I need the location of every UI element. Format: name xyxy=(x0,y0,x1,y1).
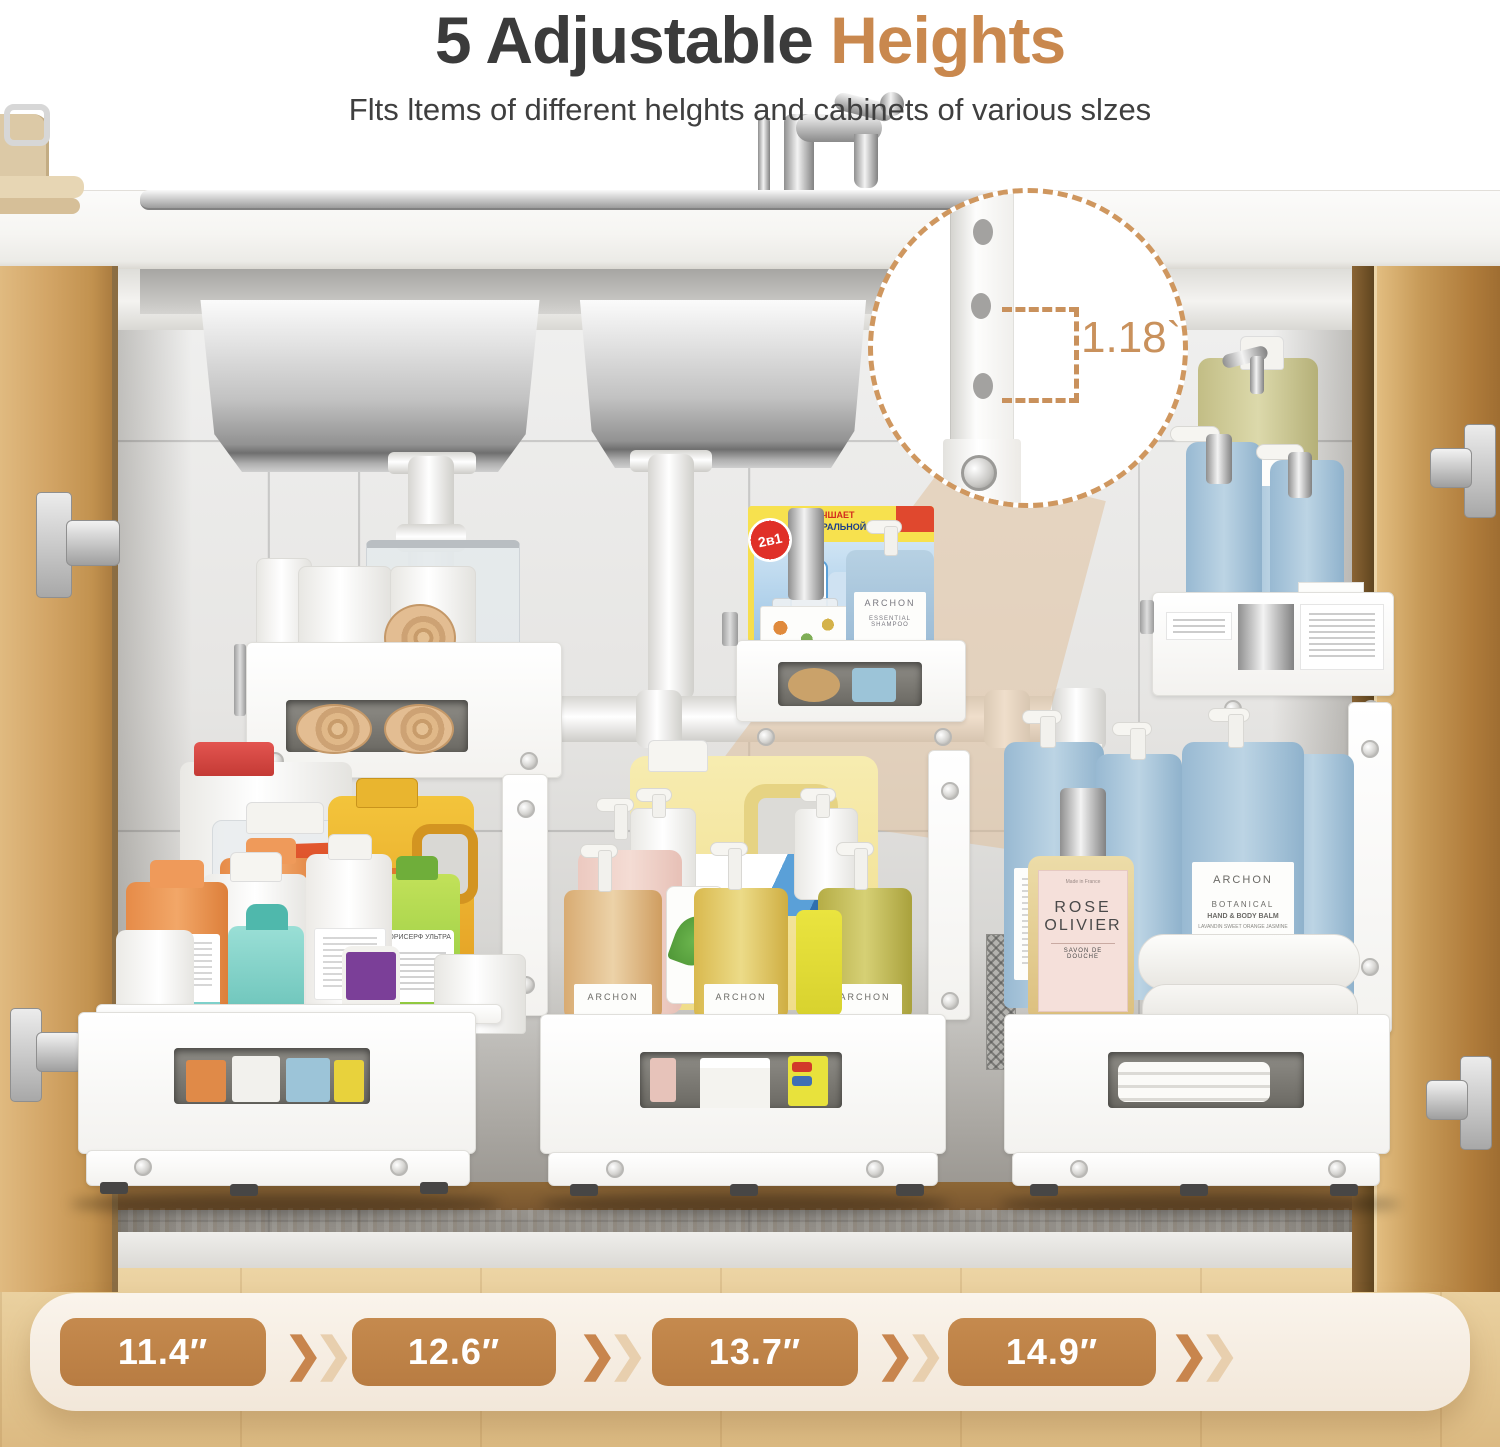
chevron-right-icon: ❯ ❯ xyxy=(578,1324,647,1384)
rail-hole-3 xyxy=(973,373,993,399)
chrome-pump-stem xyxy=(1250,356,1264,394)
drawer-foot xyxy=(1180,1184,1208,1196)
rose-bottle-label: Made in France ROSE OLIVIER SAVON DE DOU… xyxy=(1038,870,1128,1012)
teal-bottle-cap xyxy=(246,904,288,930)
wood-brush-in-window xyxy=(788,668,840,702)
green-bottle-label-text: ФОРИСЕРФ УЛЬТРА xyxy=(383,934,451,941)
title-accent: Heights xyxy=(830,3,1065,77)
drain-pipe-right xyxy=(648,454,694,700)
chevron-right-icon: ❯ ❯ xyxy=(284,1324,353,1384)
mini-bottle-orange xyxy=(186,1060,226,1102)
chevron-right-icon: ❯ ❯ xyxy=(876,1324,945,1384)
label-text-lines xyxy=(1173,619,1225,633)
pump-stem xyxy=(884,526,898,556)
zoom-callout-circle: 1.18`` xyxy=(868,188,1188,508)
chevron-light: ❯ xyxy=(609,1327,648,1381)
screw xyxy=(1361,958,1379,976)
screw xyxy=(1070,1160,1088,1178)
screw xyxy=(941,992,959,1010)
screw xyxy=(606,1160,624,1178)
measurement-dashed-bracket xyxy=(1002,307,1079,403)
white-bottle-center-cap xyxy=(230,852,282,882)
balm-brand: ARCHON xyxy=(1192,874,1294,886)
green-bottle-cap xyxy=(396,856,438,880)
screw xyxy=(520,752,538,770)
balm-collection: BOTANICAL xyxy=(1192,900,1294,909)
hinge-left-upper-arm xyxy=(66,520,120,566)
white-jar-1 xyxy=(298,566,392,648)
rolled-towel-in-window-2 xyxy=(384,704,454,754)
mini-blue-chip xyxy=(792,1076,812,1086)
chevron-right-icon: ❯ ❯ xyxy=(1170,1324,1239,1384)
pump-stem xyxy=(598,850,612,892)
slide-rail-clamp xyxy=(1140,600,1154,634)
screw xyxy=(757,728,775,746)
drawer-foot xyxy=(1030,1184,1058,1196)
tray-chrome-strip xyxy=(1238,604,1294,670)
steel-pump-cylinder xyxy=(1288,452,1312,498)
hinge-right-upper-arm xyxy=(1430,448,1472,488)
product-marketing-image: DETERGENT Mabel's ФОРИСЕРФ УЛЬТРА УЛУ xyxy=(0,0,1500,1447)
folded-towel-top xyxy=(1138,934,1360,990)
pump-stem xyxy=(854,848,868,890)
mini-bottle-yellow xyxy=(334,1060,364,1102)
drawer-foot xyxy=(570,1184,598,1196)
rose-origin: Made in France xyxy=(1039,879,1127,885)
chrome-pump-cylinder xyxy=(788,508,824,600)
slide-rail xyxy=(234,644,246,716)
measurement-text: 1.18`` xyxy=(1081,313,1188,363)
drawer-foot xyxy=(896,1184,924,1196)
yellow-spray-bottle xyxy=(796,910,842,1016)
mini-bottle-white xyxy=(232,1056,280,1102)
pump-stem xyxy=(652,794,666,818)
steel-pump-cylinder xyxy=(1206,434,1232,484)
pump-stem xyxy=(614,804,628,840)
rose-type: SAVON DE DOUCHE xyxy=(1051,943,1115,960)
shampoo-label: ARCHON ESSENTIAL SHAMPOO xyxy=(854,592,926,644)
gold-jug-cap xyxy=(356,778,418,808)
height-pill-1: 11.4″ xyxy=(60,1318,266,1386)
drawer-foot xyxy=(100,1182,128,1194)
pump-stem xyxy=(1130,728,1146,760)
middle-drawer-window xyxy=(640,1052,842,1108)
title-dark: 5 Adjustable xyxy=(435,3,813,77)
screw xyxy=(866,1160,884,1178)
height-pill-2: 12.6″ xyxy=(352,1318,556,1386)
teal-bottle xyxy=(228,926,304,1016)
pump-stem xyxy=(816,794,830,818)
drawer-foot xyxy=(1330,1184,1358,1196)
page-title: 5 Adjustable Heights xyxy=(0,2,1500,78)
chevron-light: ❯ xyxy=(315,1327,354,1381)
mini-white-jar xyxy=(700,1058,770,1108)
mini-red-chip xyxy=(792,1062,812,1072)
slide-rail-clamp xyxy=(722,612,738,646)
rail-screw xyxy=(961,455,997,491)
screw xyxy=(390,1158,408,1176)
drawer-foot xyxy=(730,1184,758,1196)
balm-scent: LAVANDIN SWEET ORANGE JASMINE xyxy=(1192,924,1294,930)
sink-top-rim xyxy=(140,190,1012,210)
badge-text: 2в1 xyxy=(757,530,784,551)
sink-basin-right xyxy=(577,300,869,468)
hinge-left-lower-arm xyxy=(36,1032,82,1072)
screw xyxy=(134,1158,152,1176)
rose-label-line2: OLIVIER xyxy=(1039,917,1127,935)
pale-jug-cap xyxy=(648,740,708,772)
shampoo-type: ESSENTIAL SHAMPOO xyxy=(854,616,926,628)
tray-label-left xyxy=(1166,612,1232,640)
height-pill-3: 13.7″ xyxy=(652,1318,858,1386)
rail-hole-1 xyxy=(973,219,993,245)
screw xyxy=(1361,740,1379,758)
screw xyxy=(1328,1160,1346,1178)
mini-bottle-blue xyxy=(286,1058,330,1102)
pump-stem xyxy=(1040,716,1056,748)
left-drawer-window xyxy=(174,1048,370,1104)
hinge-right-lower-arm xyxy=(1426,1080,1468,1120)
white-cap xyxy=(246,802,324,834)
white-bottle-right-cap xyxy=(328,834,372,860)
mini-pink xyxy=(650,1058,676,1102)
faucet-sprayer xyxy=(758,116,770,200)
sink-basin-left xyxy=(197,300,543,472)
drawer-foot xyxy=(420,1182,448,1194)
right-drawer-rail xyxy=(1012,1152,1380,1186)
orange-bottle-1-cap xyxy=(150,860,204,888)
red-cap xyxy=(194,742,274,776)
balm-type: HAND & BODY BALM xyxy=(1192,913,1294,920)
page-subtitle: Flts ltems of different helghts and cabi… xyxy=(0,92,1500,128)
screw xyxy=(934,728,952,746)
left-unit-shadow xyxy=(70,1192,500,1216)
rose-label-line1: ROSE xyxy=(1039,899,1127,917)
purple-label xyxy=(346,952,396,1000)
shampoo-brand: ARCHON xyxy=(854,598,926,608)
cutting-board-stacked-2 xyxy=(0,198,80,214)
rail-hole-2 xyxy=(971,293,991,319)
rolled-towel-in-window-1 xyxy=(296,704,372,754)
floor-sill xyxy=(0,1232,1500,1271)
height-pill-4: 14.9″ xyxy=(948,1318,1156,1386)
towel-in-window xyxy=(1118,1062,1270,1102)
faucet-spout xyxy=(854,134,878,188)
screw xyxy=(941,782,959,800)
cutting-board-stacked-1 xyxy=(0,176,84,198)
label-text-lines xyxy=(1309,613,1375,661)
pump-stem xyxy=(1228,714,1244,748)
chevron-light: ❯ xyxy=(907,1327,946,1381)
tray-label-right xyxy=(1300,604,1384,670)
chevron-light: ❯ xyxy=(1201,1327,1240,1381)
screw xyxy=(517,800,535,818)
drawer-foot xyxy=(230,1184,258,1196)
pump-stem xyxy=(728,848,742,890)
blue-item-in-window xyxy=(852,668,896,702)
rose-bottle-chrome-cap xyxy=(1060,788,1106,862)
